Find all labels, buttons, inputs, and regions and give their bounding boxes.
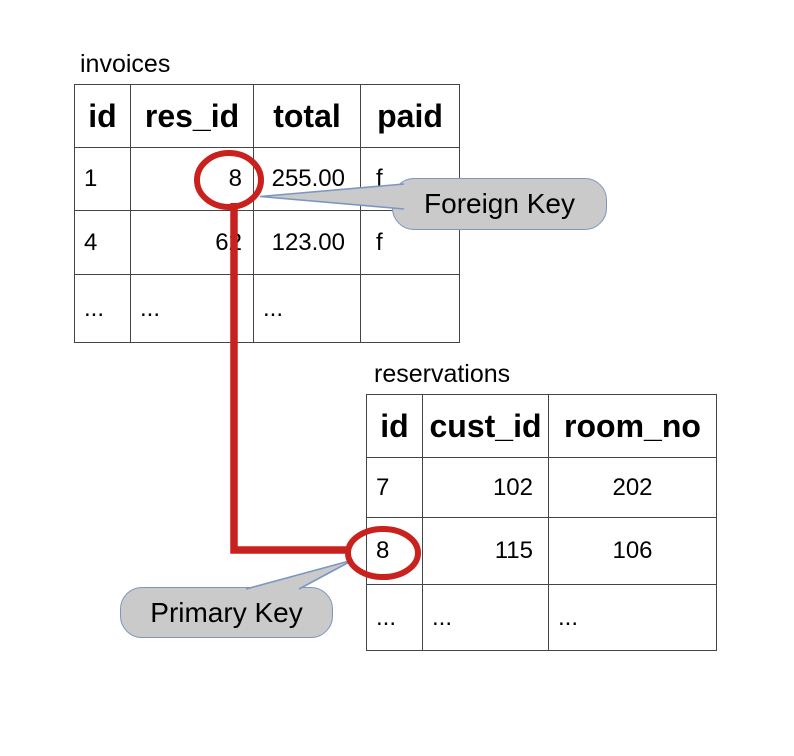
- invoices-header-res-id: res_id: [131, 85, 254, 148]
- table-cell: 62: [131, 211, 254, 275]
- table-cell: [361, 275, 459, 342]
- invoices-table-title: invoices: [80, 51, 170, 79]
- reservations-header-id: id: [367, 395, 423, 458]
- reservations-table: id cust_id room_no 7 102 202 8 115 106 .…: [366, 394, 717, 651]
- table-cell: 1: [75, 148, 131, 211]
- table-cell: ...: [367, 585, 423, 650]
- table-cell: 123.00: [254, 211, 361, 275]
- foreign-key-callout-label: Foreign Key: [392, 178, 607, 230]
- table-cell: 255.00: [254, 148, 361, 211]
- reservations-table-title: reservations: [374, 361, 510, 389]
- table-cell: 106: [549, 518, 716, 585]
- invoices-foreign-key-cell: 8: [131, 148, 254, 211]
- table-cell: 4: [75, 211, 131, 275]
- invoices-header-id: id: [75, 85, 131, 148]
- primary-key-callout-tail: [246, 560, 353, 589]
- table-cell: 102: [423, 458, 549, 518]
- table-cell: ...: [254, 275, 361, 342]
- primary-key-callout-label: Primary Key: [120, 587, 333, 638]
- invoices-header-total: total: [254, 85, 361, 148]
- table-cell: ...: [131, 275, 254, 342]
- table-cell: ...: [75, 275, 131, 342]
- table-cell: 202: [549, 458, 716, 518]
- reservations-primary-key-cell: 8: [367, 518, 423, 585]
- reservations-header-room-no: room_no: [549, 395, 716, 458]
- table-cell: 115: [423, 518, 549, 585]
- invoices-header-paid: paid: [361, 85, 459, 148]
- table-cell: 7: [367, 458, 423, 518]
- reservations-header-cust-id: cust_id: [423, 395, 549, 458]
- table-cell: ...: [549, 585, 716, 650]
- table-cell: ...: [423, 585, 549, 650]
